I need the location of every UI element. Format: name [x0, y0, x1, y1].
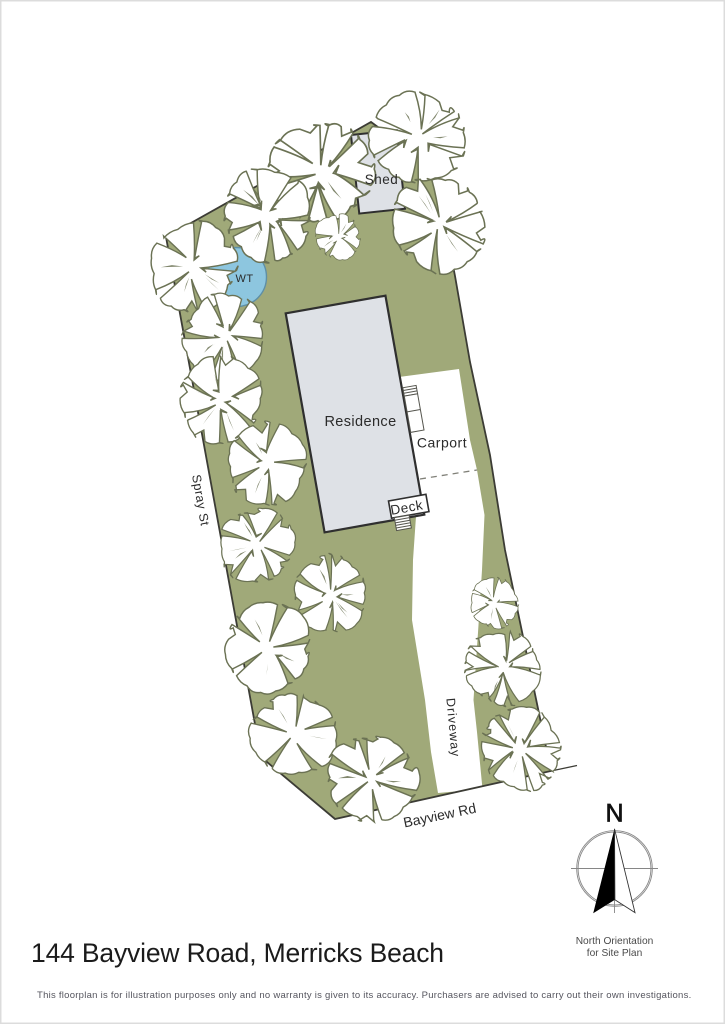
svg-text:for Site Plan: for Site Plan: [587, 948, 643, 959]
svg-text:This floorplan is for illustra: This floorplan is for illustration purpo…: [37, 990, 692, 1001]
svg-text:Carport: Carport: [417, 434, 467, 450]
svg-text:144 Bayview Road, Merricks Bea: 144 Bayview Road, Merricks Beach: [31, 938, 444, 968]
svg-text:N: N: [605, 800, 623, 828]
svg-text:Shed: Shed: [365, 172, 399, 187]
svg-text:Residence: Residence: [324, 414, 396, 430]
svg-text:North Orientation: North Orientation: [576, 936, 654, 947]
svg-text:WT: WT: [235, 273, 253, 285]
